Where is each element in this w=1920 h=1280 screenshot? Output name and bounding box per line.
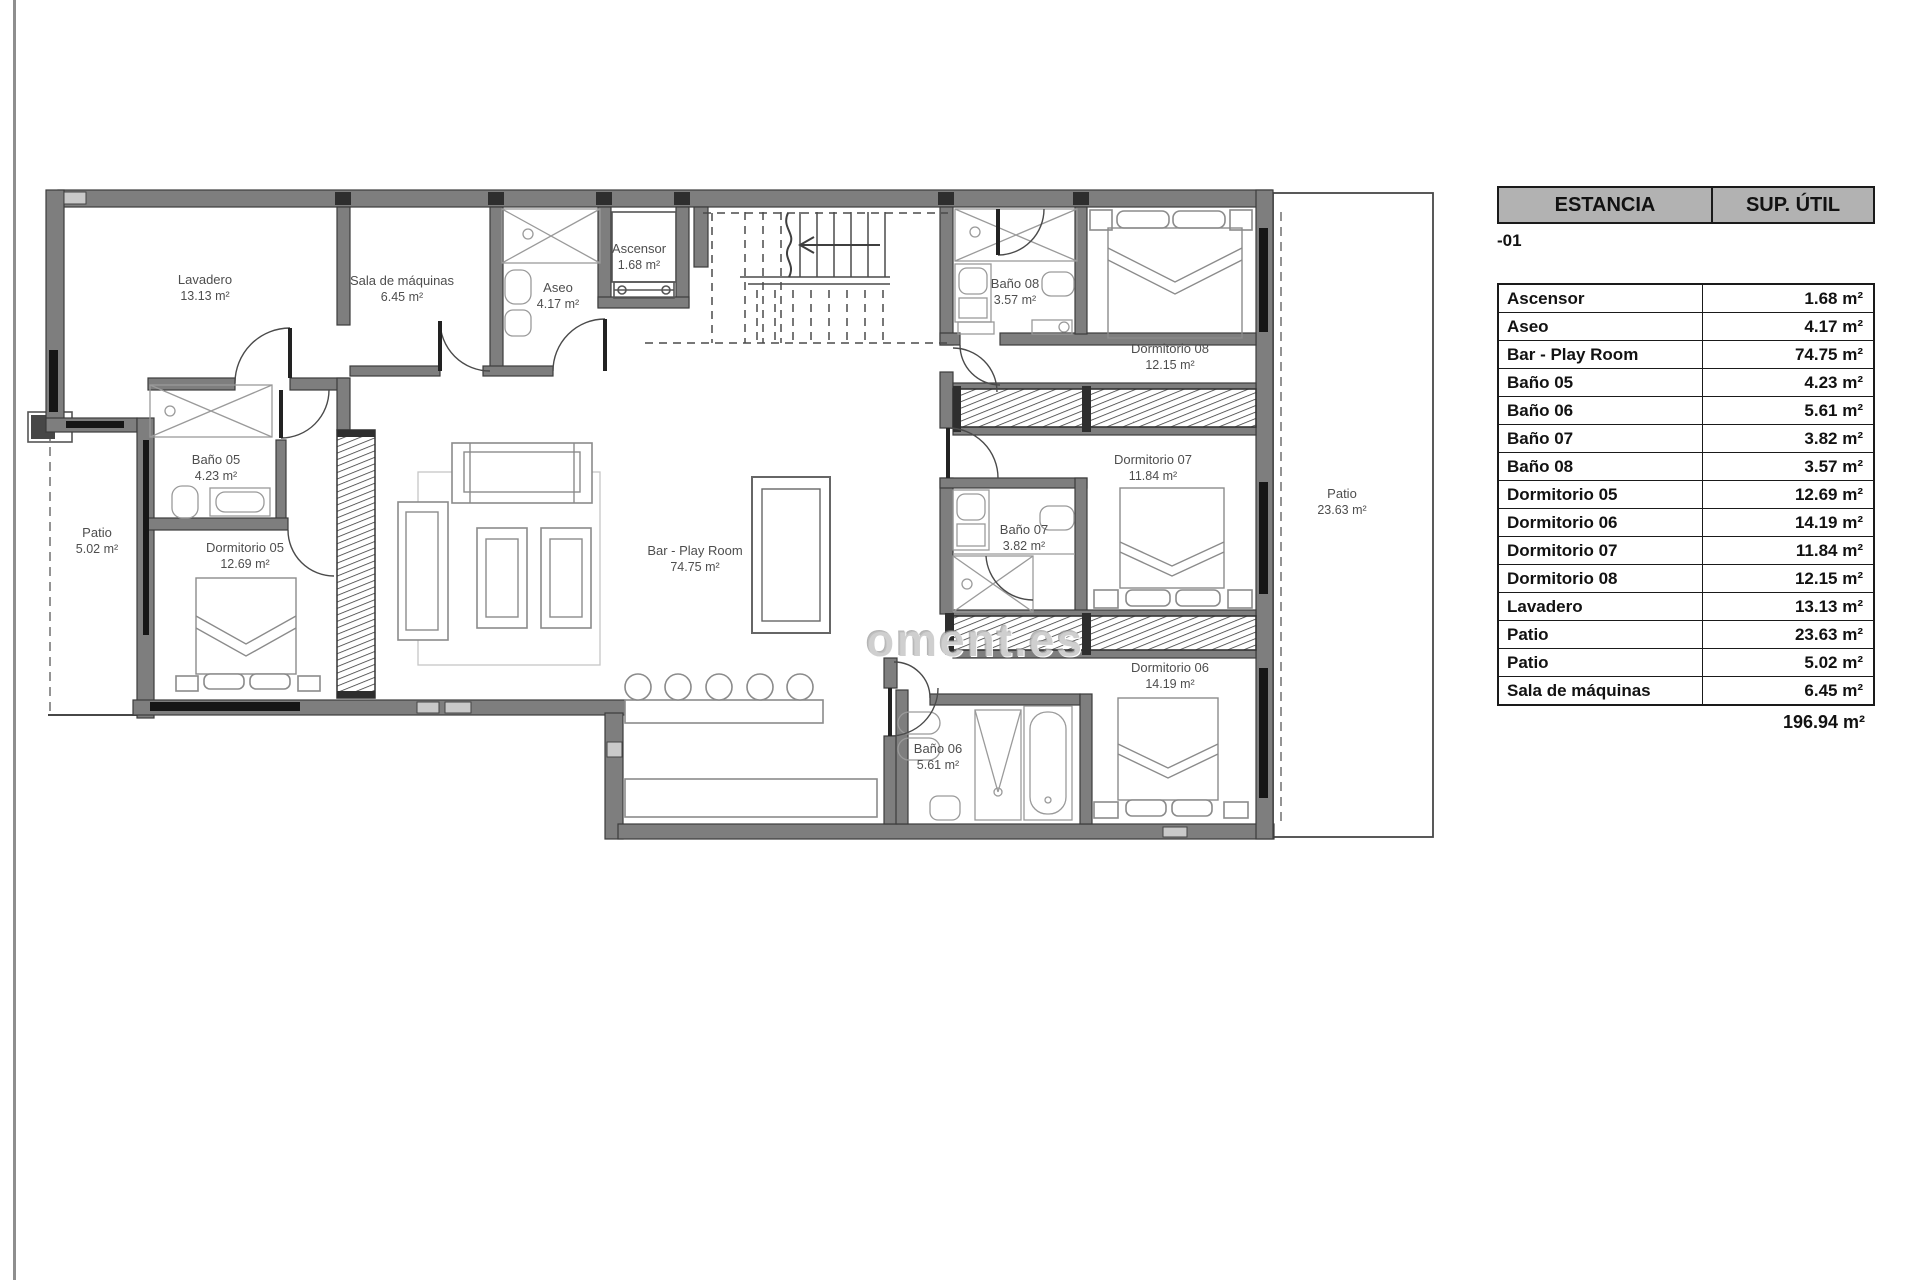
row-room-area: 1.68 m²	[1703, 284, 1875, 313]
room-name: Ascensor	[612, 241, 666, 257]
room-area: 13.13 m²	[178, 288, 232, 304]
table-row: Aseo4.17 m²	[1498, 313, 1874, 341]
room-name: Aseo	[537, 280, 579, 296]
row-room-area: 12.15 m²	[1703, 565, 1875, 593]
room-name: Lavadero	[178, 272, 232, 288]
room-name: Dormitorio 07	[1114, 452, 1192, 468]
room-name: Sala de máquinas	[350, 273, 454, 289]
table-row: Dormitorio 0512.69 m²	[1498, 481, 1874, 509]
room-name: Dormitorio 08	[1131, 341, 1209, 357]
stairs	[645, 212, 948, 343]
row-room-area: 3.57 m²	[1703, 453, 1875, 481]
toilet-bano05	[172, 486, 270, 518]
table-row: Ascensor1.68 m²	[1498, 284, 1874, 313]
room-label-bano-05: Baño 054.23 m²	[192, 452, 240, 484]
bar-counter	[625, 674, 877, 817]
row-room-name: Lavadero	[1498, 593, 1703, 621]
room-area: 4.23 m²	[192, 468, 240, 484]
table-row: Baño 083.57 m²	[1498, 453, 1874, 481]
room-label-lavadero: Lavadero13.13 m²	[178, 272, 232, 304]
table-row: Patio5.02 m²	[1498, 649, 1874, 677]
room-name: Patio	[76, 525, 118, 541]
room-label-patio-grande: Patio23.63 m²	[1317, 486, 1366, 518]
toilet-aseo	[505, 270, 531, 336]
row-room-name: Baño 08	[1498, 453, 1703, 481]
table-row: Sala de máquinas6.45 m²	[1498, 677, 1874, 706]
row-room-area: 3.82 m²	[1703, 425, 1875, 453]
level-label: -01	[1497, 231, 1875, 251]
room-name: Dormitorio 06	[1131, 660, 1209, 676]
room-label-aseo: Aseo4.17 m²	[537, 280, 579, 312]
shower-aseo	[502, 209, 600, 263]
row-room-area: 6.45 m²	[1703, 677, 1875, 706]
row-room-name: Patio	[1498, 621, 1703, 649]
page: Lavadero13.13 m²Sala de máquinas6.45 m²A…	[0, 0, 1920, 1280]
row-room-name: Baño 07	[1498, 425, 1703, 453]
room-label-bano-06: Baño 065.61 m²	[914, 741, 962, 773]
row-room-area: 5.61 m²	[1703, 397, 1875, 425]
room-label-bano-08: Baño 083.57 m²	[991, 276, 1039, 308]
bed-dormitorio-08	[1090, 210, 1252, 338]
row-room-area: 5.02 m²	[1703, 649, 1875, 677]
row-room-name: Dormitorio 07	[1498, 537, 1703, 565]
room-area: 4.17 m²	[537, 296, 579, 312]
room-name: Patio	[1317, 486, 1366, 502]
room-label-ascensor: Ascensor1.68 m²	[612, 241, 666, 273]
table-row: Dormitorio 0812.15 m²	[1498, 565, 1874, 593]
row-room-name: Ascensor	[1498, 284, 1703, 313]
table-row: Patio23.63 m²	[1498, 621, 1874, 649]
row-room-name: Patio	[1498, 649, 1703, 677]
room-area: 74.75 m²	[647, 559, 742, 575]
room-label-patio-pequeno: Patio5.02 m²	[76, 525, 118, 557]
room-label-sala-de-maquinas: Sala de máquinas6.45 m²	[350, 273, 454, 305]
room-name: Baño 08	[991, 276, 1039, 292]
room-label-dormitorio-05: Dormitorio 0512.69 m²	[206, 540, 284, 572]
row-room-area: 4.17 m²	[1703, 313, 1875, 341]
patio-small-outline	[48, 432, 137, 715]
row-room-area: 23.63 m²	[1703, 621, 1875, 649]
table-row: Baño 065.61 m²	[1498, 397, 1874, 425]
table-row: Dormitorio 0711.84 m²	[1498, 537, 1874, 565]
shower-bano05	[150, 385, 272, 437]
row-room-area: 11.84 m²	[1703, 537, 1875, 565]
pool-table	[752, 477, 830, 633]
room-area: 3.82 m²	[1000, 538, 1048, 554]
room-label-bano-07: Baño 073.82 m²	[1000, 522, 1048, 554]
area-table: ESTANCIA SUP. ÚTIL -01 Ascensor1.68 m²As…	[1497, 186, 1875, 251]
room-label-bar-play-room: Bar - Play Room74.75 m²	[647, 543, 742, 575]
row-room-area: 4.23 m²	[1703, 369, 1875, 397]
row-room-name: Dormitorio 05	[1498, 481, 1703, 509]
room-area: 5.02 m²	[76, 541, 118, 557]
row-room-name: Dormitorio 08	[1498, 565, 1703, 593]
header-estancia: ESTANCIA	[1499, 188, 1713, 222]
room-name: Baño 06	[914, 741, 962, 757]
area-table-header: ESTANCIA SUP. ÚTIL	[1497, 186, 1875, 224]
row-room-name: Dormitorio 06	[1498, 509, 1703, 537]
row-room-name: Aseo	[1498, 313, 1703, 341]
room-area: 5.61 m²	[914, 757, 962, 773]
room-label-dormitorio-08: Dormitorio 0812.15 m²	[1131, 341, 1209, 373]
table-row: Lavadero13.13 m²	[1498, 593, 1874, 621]
watermark: oment.es	[866, 613, 1084, 667]
area-total: 196.94 m²	[1497, 706, 1875, 736]
room-name: Baño 05	[192, 452, 240, 468]
row-room-area: 12.69 m²	[1703, 481, 1875, 509]
room-label-dormitorio-06: Dormitorio 0614.19 m²	[1131, 660, 1209, 692]
shower-bano08	[955, 209, 1077, 261]
row-room-name: Baño 05	[1498, 369, 1703, 397]
row-room-area: 74.75 m²	[1703, 341, 1875, 369]
row-room-name: Baño 06	[1498, 397, 1703, 425]
row-room-area: 13.13 m²	[1703, 593, 1875, 621]
bed-dormitorio-06	[1094, 698, 1248, 818]
room-area: 6.45 m²	[350, 289, 454, 305]
room-area: 12.69 m²	[206, 556, 284, 572]
room-name: Dormitorio 05	[206, 540, 284, 556]
room-area: 14.19 m²	[1131, 676, 1209, 692]
room-area: 1.68 m²	[612, 257, 666, 273]
row-room-area: 14.19 m²	[1703, 509, 1875, 537]
sofa-set	[398, 443, 600, 665]
table-row: Dormitorio 0614.19 m²	[1498, 509, 1874, 537]
bed-dormitorio-05	[176, 578, 320, 691]
area-table-rows: Ascensor1.68 m²Aseo4.17 m²Bar - Play Roo…	[1497, 283, 1875, 736]
room-name: Baño 07	[1000, 522, 1048, 538]
header-sup-util: SUP. ÚTIL	[1713, 188, 1873, 222]
room-name: Bar - Play Room	[647, 543, 742, 559]
table-row: Baño 054.23 m²	[1498, 369, 1874, 397]
table-row: Bar - Play Room74.75 m²	[1498, 341, 1874, 369]
row-room-name: Bar - Play Room	[1498, 341, 1703, 369]
room-area: 11.84 m²	[1114, 468, 1192, 484]
table-row: Baño 073.82 m²	[1498, 425, 1874, 453]
room-area: 23.63 m²	[1317, 502, 1366, 518]
row-room-name: Sala de máquinas	[1498, 677, 1703, 706]
room-area: 12.15 m²	[1131, 357, 1209, 373]
bed-dormitorio-07	[1094, 488, 1252, 608]
room-label-dormitorio-07: Dormitorio 0711.84 m²	[1114, 452, 1192, 484]
room-area: 3.57 m²	[991, 292, 1039, 308]
